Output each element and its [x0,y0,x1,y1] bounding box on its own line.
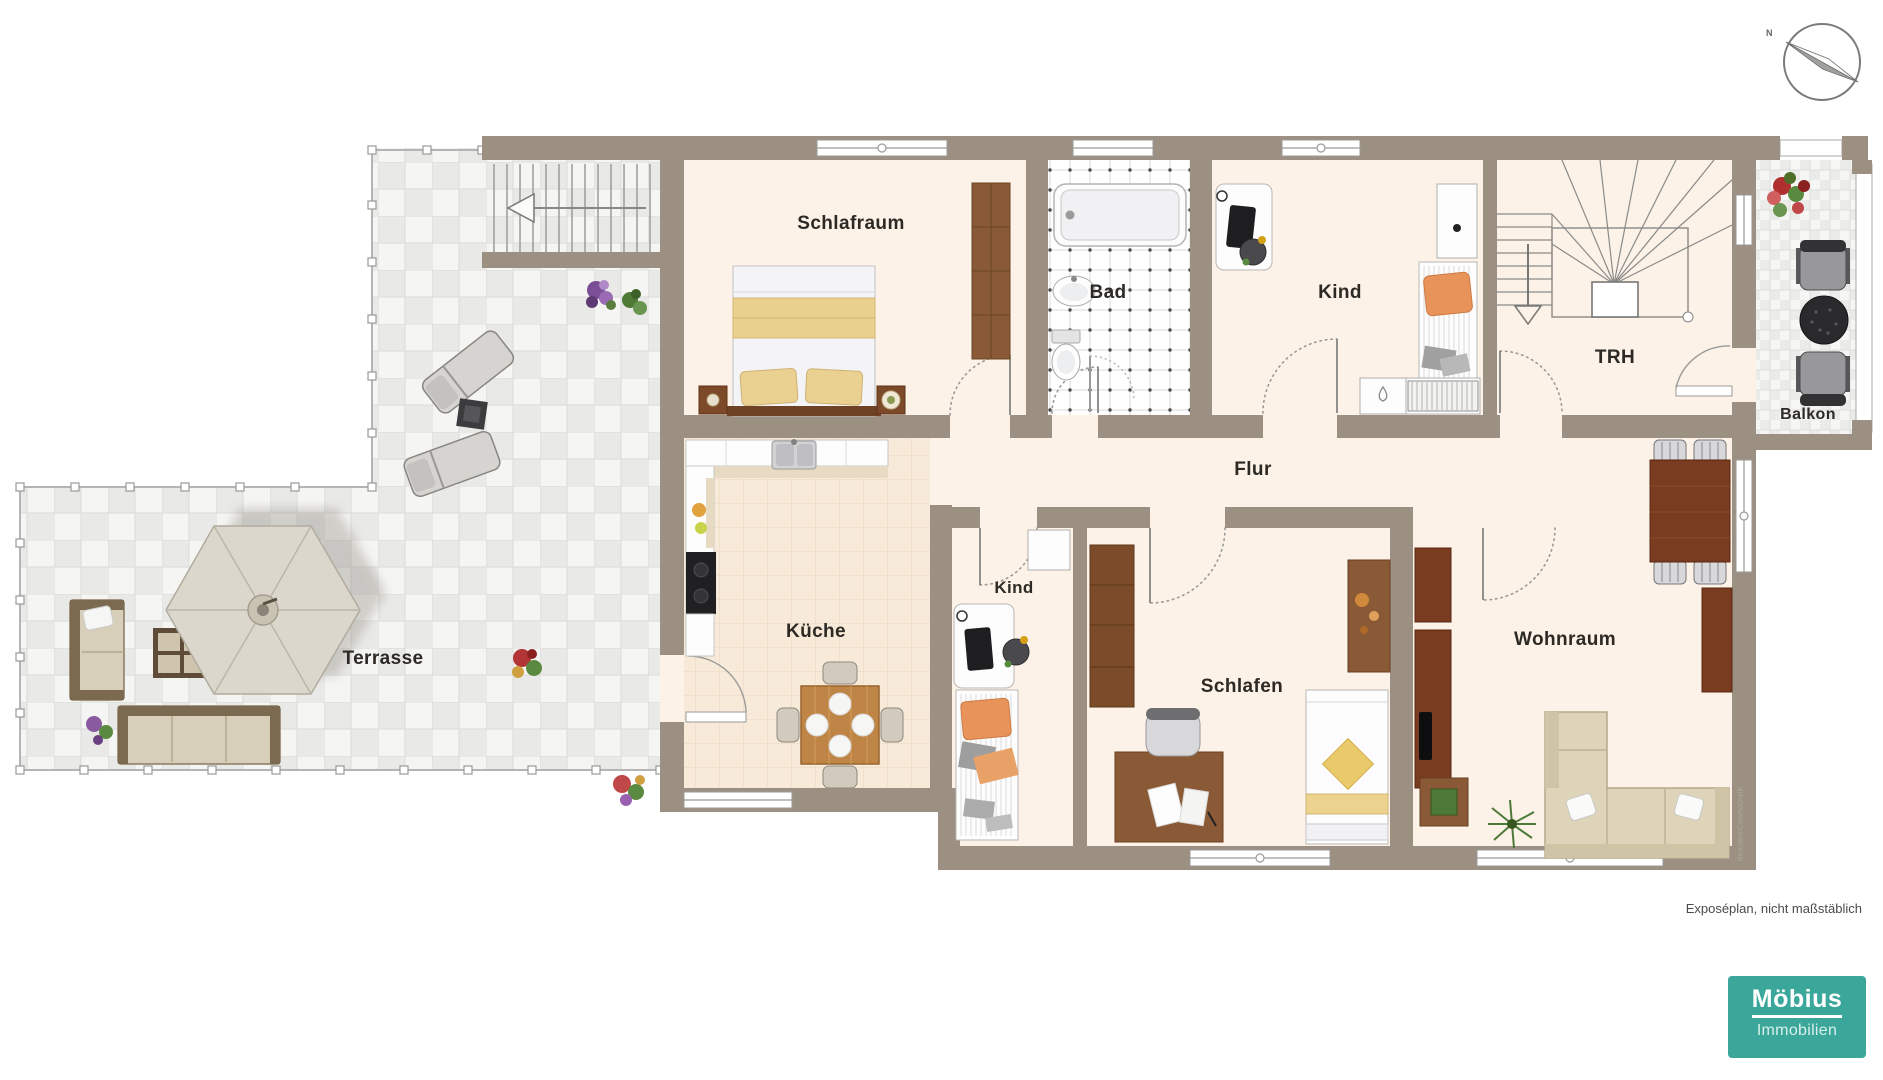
radiator-niche [1360,378,1480,414]
dining-set [1650,440,1730,584]
illustrator-watermark: IllustrationCommoGrafik [1738,786,1745,861]
room-label-schlafraum: Schlafraum [797,213,904,235]
room-label-wohnraum: Wohnraum [1514,629,1616,651]
cabinet [1028,530,1070,570]
balcony-chair [1796,240,1850,290]
room-label-flur: Flur [1234,459,1272,481]
sideboard [1702,588,1732,692]
cabinet [1415,548,1451,622]
floorplan-page: SchlafraumBadKindTRHBalkonFlurKücheKindS… [0,0,1883,1080]
double-bed [727,266,881,416]
room-label-schlafen: Schlafen [1201,676,1283,698]
wardrobe [1090,545,1134,707]
bathtub [1054,184,1186,246]
tv [1419,712,1432,760]
agency-logo-name: Möbius [1752,987,1843,1018]
single-bed [956,690,1019,840]
single-bed [1306,690,1388,844]
toilet [1052,330,1080,380]
tv-lowboard [1415,630,1451,788]
room-label-bad: Bad [1089,282,1126,304]
north-arrow-icon [1784,24,1860,100]
terrace-sofa-vertical [70,600,124,700]
single-bed [1419,262,1477,390]
balcony-table [1800,296,1848,344]
terrace [16,146,664,806]
room-label-kind-mitte: Kind [994,578,1033,598]
coffee-table [1420,778,1468,826]
terrace-side-table [456,398,488,430]
room-label-kind-oben: Kind [1318,282,1362,304]
room-label-terrasse: Terrasse [342,648,423,670]
room-label-trh: TRH [1595,347,1635,369]
agency-logo: Möbius Immobilien [1728,976,1866,1058]
kitchen-sink [772,439,816,469]
balcony-chair [1796,352,1850,406]
terrace-sofa-horizontal [118,706,280,764]
cabinet [1437,184,1477,258]
stove [686,552,716,614]
floorplan-drawing [0,0,1883,1080]
room-label-balkon: Balkon [1780,406,1836,424]
desk-chair [1146,708,1200,756]
agency-logo-division: Immobilien [1728,1023,1866,1039]
room-label-kueche: Küche [786,621,846,643]
dresser [1348,560,1390,672]
desk [1115,752,1223,842]
plan-footnote: Exposéplan, nicht maßstäblich [1520,901,1862,916]
compass-north-letter: N [1766,28,1773,38]
balcony [1753,136,1872,450]
